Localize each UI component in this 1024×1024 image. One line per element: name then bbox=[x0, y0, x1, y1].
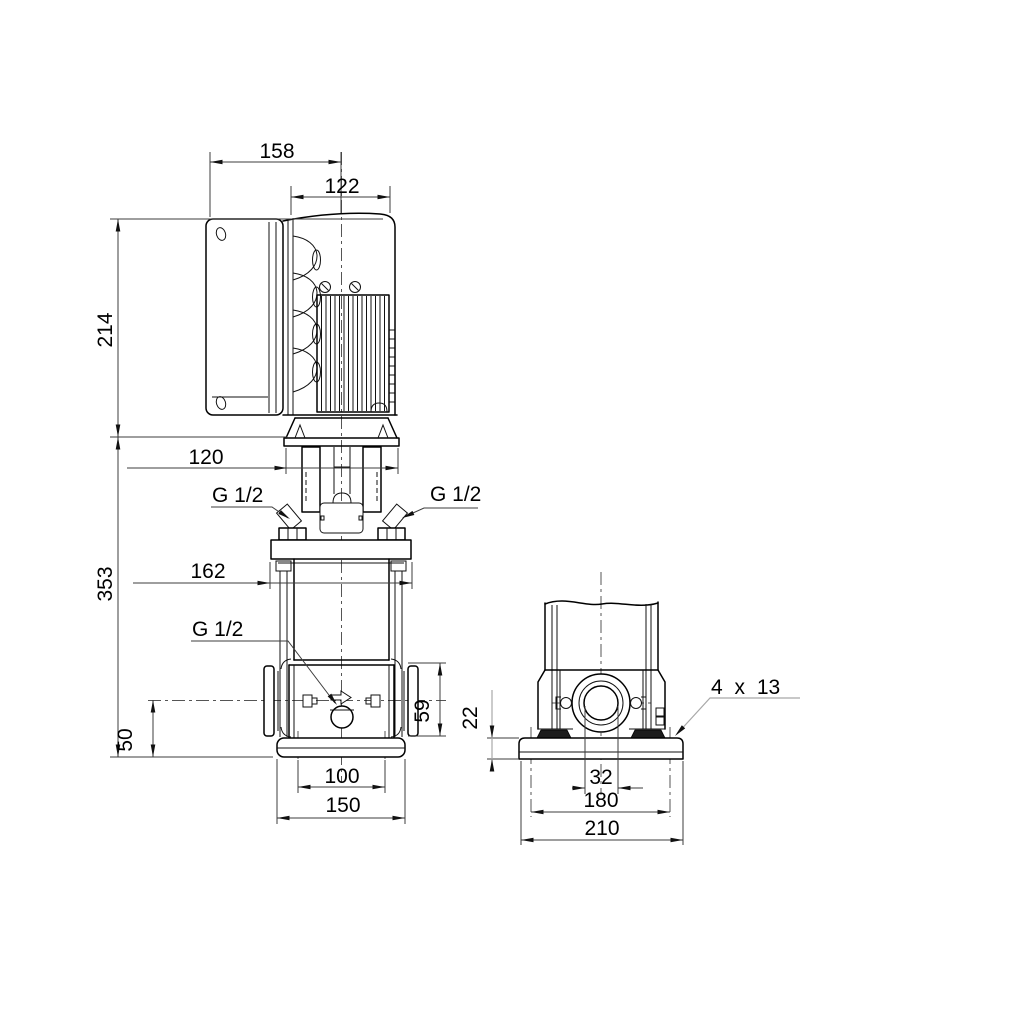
dim-port-bore-label: 32 bbox=[589, 766, 612, 789]
dim-baseplate-thickness-label: 22 bbox=[459, 706, 482, 729]
dim-baseplate-thickness: 22 bbox=[459, 690, 519, 772]
pump-foot-section bbox=[537, 730, 571, 738]
drain-plug bbox=[331, 706, 353, 728]
hex-plug bbox=[279, 528, 306, 540]
dim-motor-width-label: 122 bbox=[324, 175, 359, 198]
coupling-guard bbox=[277, 447, 408, 540]
vent-slits bbox=[390, 330, 395, 402]
dim-head-flange-width: 162 bbox=[133, 560, 412, 589]
motor-clamp-section bbox=[288, 218, 321, 415]
label-drain-text: G 1/2 bbox=[192, 618, 243, 641]
label-vent-left-text: G 1/2 bbox=[212, 484, 263, 507]
dim-cover-width: 158 bbox=[210, 140, 341, 217]
pump-foot-section bbox=[631, 730, 665, 738]
vent-plug bbox=[277, 504, 302, 530]
dim-hole-spacing: 180 bbox=[531, 789, 670, 814]
suction-port-flange bbox=[264, 666, 274, 736]
pump-dimensional-drawing: 158 122 214 353 bbox=[0, 0, 1024, 1024]
label-vent-right: G 1/2 bbox=[401, 483, 481, 520]
dim-hole-spacing-label: 180 bbox=[583, 789, 618, 812]
port-flange-front bbox=[572, 674, 630, 732]
side-plug bbox=[371, 695, 380, 707]
label-mounting-holes: 4 x 13 bbox=[673, 676, 800, 738]
dim-cover-width-label: 158 bbox=[259, 140, 294, 163]
dim-foot-width-label: 150 bbox=[325, 794, 360, 817]
dim-motor-height-label: 214 bbox=[94, 312, 117, 347]
baseplate bbox=[519, 738, 683, 759]
dim-port-flange-height-label: 59 bbox=[411, 699, 434, 722]
dim-foot-hole-spacing-label: 100 bbox=[324, 765, 359, 788]
dim-port-axis-height: 50 bbox=[114, 700, 155, 757]
dimensions: 158 122 214 353 bbox=[94, 140, 800, 845]
pump-foot bbox=[277, 738, 405, 757]
dim-total-height-label: 353 bbox=[94, 566, 117, 601]
label-mounting-holes-text: 4 x 13 bbox=[711, 676, 780, 699]
clip-detail bbox=[656, 717, 664, 725]
hex-plug bbox=[378, 528, 405, 540]
dim-motor-flange-width-label: 120 bbox=[188, 446, 223, 469]
clip-detail bbox=[656, 708, 664, 716]
dim-foot-hole-spacing: 100 bbox=[298, 760, 385, 793]
motor-heatsink bbox=[283, 282, 397, 416]
dim-motor-flange-width: 120 bbox=[127, 446, 398, 474]
side-plug bbox=[303, 695, 312, 707]
dim-port-axis-height-label: 50 bbox=[114, 728, 137, 751]
control-cover bbox=[206, 219, 283, 415]
label-vent-right-text: G 1/2 bbox=[430, 483, 481, 506]
drawing-svg: 158 122 214 353 bbox=[0, 0, 1024, 1024]
dim-baseplate-width-label: 210 bbox=[584, 817, 619, 840]
dim-head-flange-width-label: 162 bbox=[190, 560, 225, 583]
nameplate bbox=[320, 503, 363, 533]
